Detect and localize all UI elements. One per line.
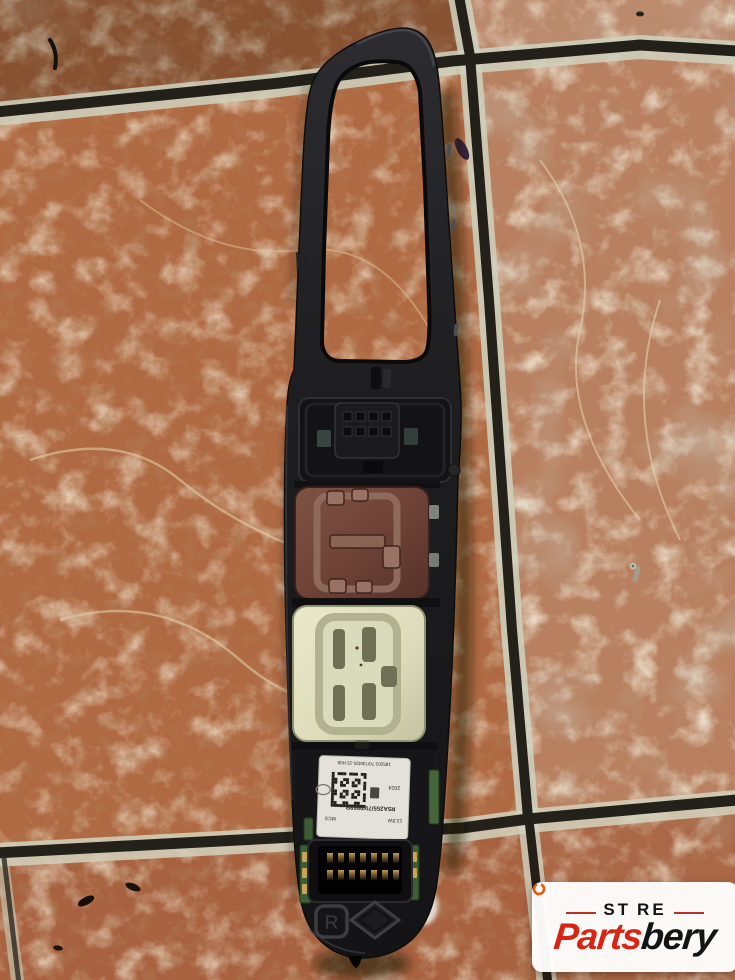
- label-section: 185203 70/74M25-15 H08 2024 R5A255/70/98…: [296, 750, 439, 842]
- center-clip: [383, 369, 391, 388]
- label-maker: MCS: [324, 815, 336, 821]
- bottom-connector: [300, 840, 419, 903]
- label-rating: 13.5W: [388, 817, 403, 824]
- photo-floor-scene: 185203 70/74M25-15 H08 2024 R5A255/70/98…: [0, 0, 735, 980]
- latch-tab: [317, 430, 331, 447]
- side-clip-light: [429, 505, 439, 519]
- switch-module-brown: [295, 487, 439, 599]
- brand-name: Partsbery: [552, 919, 717, 954]
- brown-crossbar: [330, 535, 385, 548]
- bottom-latch: [363, 461, 383, 473]
- switch-module-cream: [293, 606, 425, 749]
- center-clip: [371, 367, 381, 389]
- switch-socket-black: [299, 398, 460, 482]
- partsbery-watermark: STRE Partsbery: [532, 882, 735, 972]
- screw-boss: [448, 464, 460, 476]
- latch-tab: [404, 428, 418, 445]
- label-year: 2024: [388, 784, 400, 790]
- r-letter-mark: R: [324, 912, 339, 934]
- pcb-edge-left: [304, 818, 313, 840]
- brand-name-parts: Parts: [552, 916, 644, 957]
- speck: [355, 646, 358, 649]
- speck: [636, 12, 644, 17]
- brand-name-bery: bery: [640, 916, 718, 957]
- side-clip-light: [429, 553, 439, 567]
- part-label-sticker: 185203 70/74M25-15 H08 2024 R5A255/70/98…: [315, 755, 411, 839]
- section-divider: [292, 742, 438, 750]
- speck: [360, 664, 363, 667]
- label-symbol: [370, 787, 379, 798]
- red-line-right: [674, 912, 704, 914]
- pcb-edge-right: [429, 770, 439, 824]
- red-line-left: [566, 912, 596, 914]
- photo-canvas: 185203 70/74M25-15 H08 2024 R5A255/70/98…: [0, 0, 735, 980]
